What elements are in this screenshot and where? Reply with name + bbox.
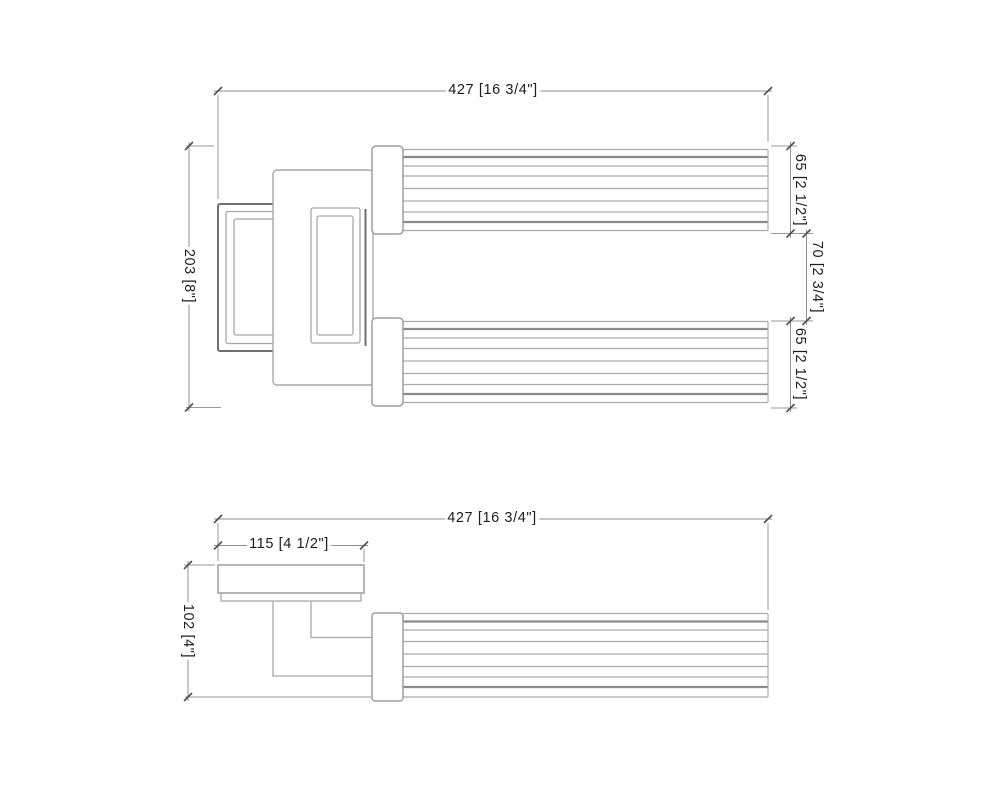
dim-label-front-view-width: 427 [16 3/4"] xyxy=(445,511,539,527)
dim-label-bar-gap: 70 [2 3/4"] xyxy=(808,239,824,315)
bar-side xyxy=(403,614,768,698)
dim-label-front-view-height: 102 [4"] xyxy=(179,602,195,660)
technical-drawing-canvas: 427 [16 3/4"] 203 [8"] 65 [2 1/2"] 70 [2… xyxy=(0,0,1000,800)
dim-label-plate-width: 115 [4 1/2"] xyxy=(247,537,331,553)
towel-bar-drawing xyxy=(0,0,1000,800)
dim-label-top-view-width: 427 [16 3/4"] xyxy=(446,83,540,99)
lower-bar-cap xyxy=(372,318,403,406)
upper-bar xyxy=(403,150,768,231)
dim-label-top-view-depth: 203 [8"] xyxy=(180,247,196,305)
arm-side xyxy=(273,601,372,676)
dim-label-bar-bottom: 65 [2 1/2"] xyxy=(791,326,807,402)
lower-bar xyxy=(403,322,768,403)
top-view xyxy=(218,146,768,406)
upper-bar-cap xyxy=(372,146,403,234)
front-view xyxy=(218,565,768,701)
bar-cap-side xyxy=(372,613,403,701)
wall-plate-side xyxy=(218,565,364,601)
dim-label-bar-top: 65 [2 1/2"] xyxy=(791,152,807,228)
post-arm-plan xyxy=(273,170,373,385)
